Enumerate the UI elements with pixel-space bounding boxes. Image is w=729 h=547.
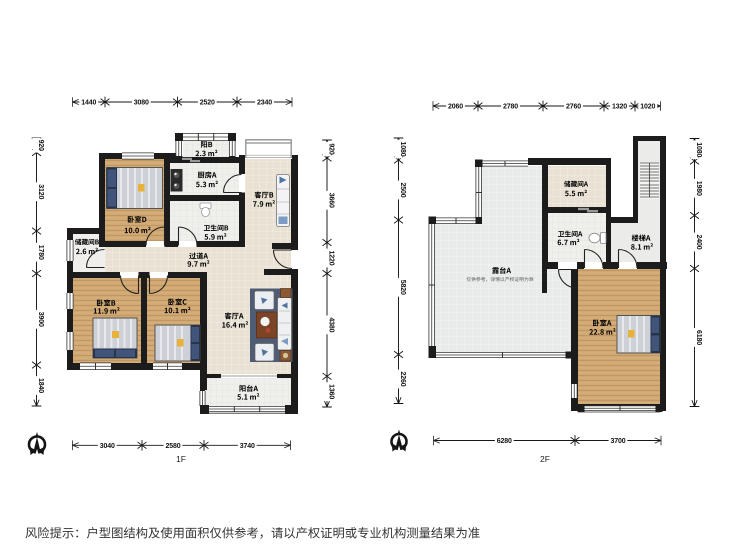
svg-text:1780: 1780 xyxy=(37,245,44,260)
svg-text:1020: 1020 xyxy=(640,104,655,111)
svg-text:1440: 1440 xyxy=(81,100,96,107)
svg-text:2060: 2060 xyxy=(448,104,463,111)
svg-text:2400: 2400 xyxy=(695,235,702,250)
svg-text:1080: 1080 xyxy=(695,142,702,157)
svg-text:2F: 2F xyxy=(540,454,550,464)
svg-text:920: 920 xyxy=(328,143,335,154)
svg-text:1320: 1320 xyxy=(612,104,627,111)
svg-text:2580: 2580 xyxy=(166,443,181,450)
svg-text:3700: 3700 xyxy=(611,438,626,445)
svg-text:1080: 1080 xyxy=(399,142,406,157)
svg-text:3660: 3660 xyxy=(328,193,335,208)
svg-text:3120: 3120 xyxy=(37,184,44,199)
svg-text:3900: 3900 xyxy=(37,312,44,327)
svg-text:3080: 3080 xyxy=(134,100,149,107)
svg-text:6280: 6280 xyxy=(497,438,512,445)
svg-text:1F: 1F xyxy=(176,454,186,464)
svg-text:1220: 1220 xyxy=(328,251,335,266)
svg-text:2500: 2500 xyxy=(399,183,406,198)
svg-text:1840: 1840 xyxy=(37,378,44,393)
svg-text:2340: 2340 xyxy=(257,100,272,107)
svg-text:3040: 3040 xyxy=(100,443,115,450)
svg-text:3740: 3740 xyxy=(240,443,255,450)
svg-text:2760: 2760 xyxy=(566,104,581,111)
svg-text:2780: 2780 xyxy=(503,104,518,111)
svg-text:2260: 2260 xyxy=(399,372,406,387)
svg-text:1980: 1980 xyxy=(695,181,702,196)
svg-text:920: 920 xyxy=(37,140,44,151)
svg-text:5820: 5820 xyxy=(399,280,406,295)
svg-text:2520: 2520 xyxy=(200,100,215,107)
svg-text:1360: 1360 xyxy=(328,384,335,399)
svg-text:6180: 6180 xyxy=(695,330,702,345)
svg-text:4380: 4380 xyxy=(328,317,335,332)
